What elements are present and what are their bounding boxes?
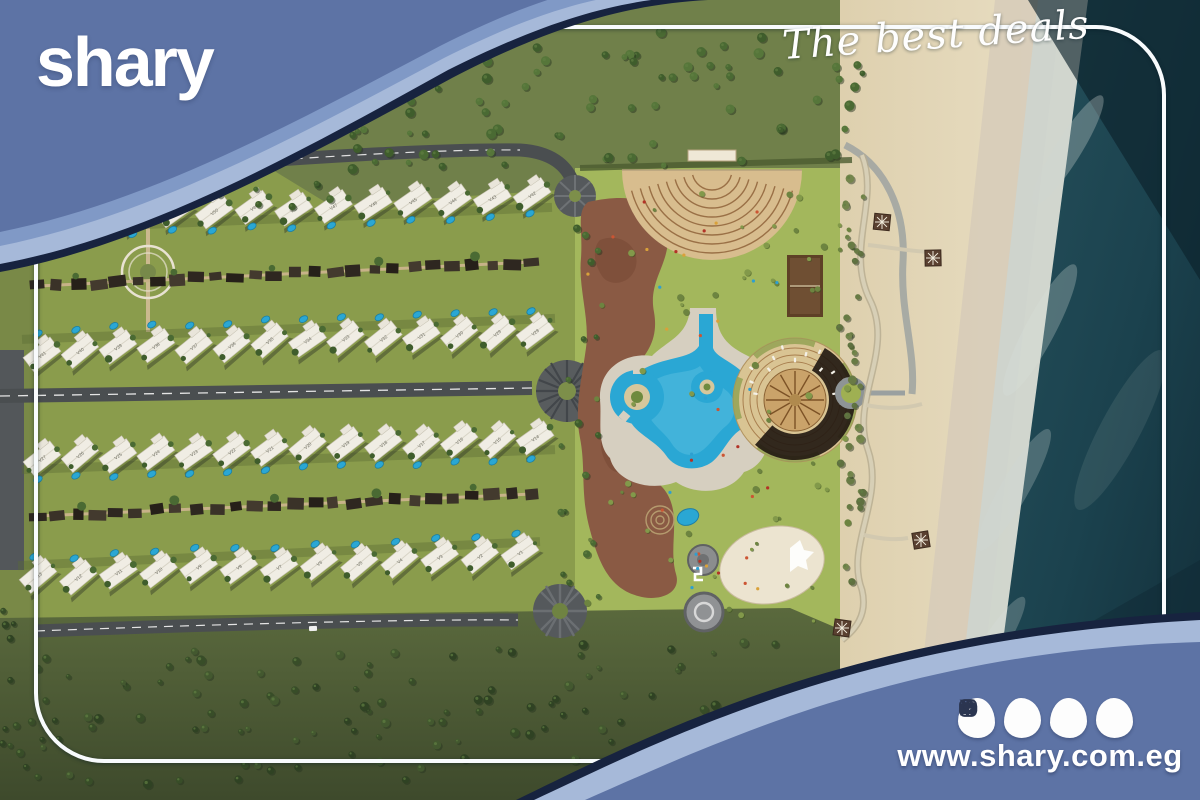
brand-logo: shary [36,22,213,102]
master-plan-illustration: V53V52V51V50V49V48V47V46V45V44V43V42V41V… [0,0,1200,800]
social-icons-row [958,698,1133,738]
website-url[interactable]: www.shary.com.eg [880,738,1200,774]
facebook-icon[interactable] [1096,698,1133,738]
marketing-flyer: { "brand": { "logo": "shary", "tagline":… [0,0,1200,800]
x-icon[interactable] [1004,698,1041,738]
youtube-icon[interactable] [1050,698,1087,738]
car [309,626,317,631]
sports-courts [787,255,823,317]
